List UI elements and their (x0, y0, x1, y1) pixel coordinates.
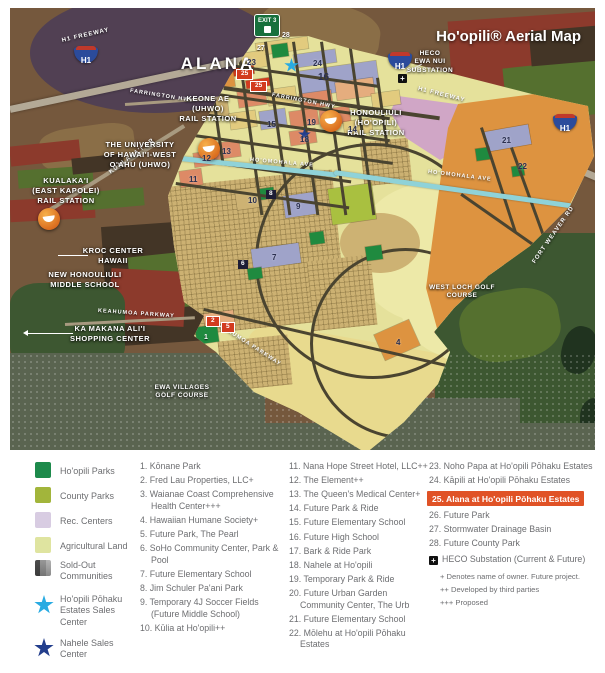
legend-column-2: 11. Nana Hope Street Hotel, LLC++12. The… (289, 461, 429, 654)
parcel-badge-16: 16 (318, 72, 329, 83)
rec-centers-swatch (35, 512, 51, 528)
legend-item: 9. Temporary 4J Soccer Fields (Future Mi… (140, 597, 288, 620)
legend-item: 7. Future Elementary School (140, 569, 288, 581)
kroc-center-label: KROC CENTER HAWAII (83, 246, 144, 266)
kroc-leader-line (58, 255, 88, 256)
agricultural-land-swatch (35, 537, 51, 553)
parcel (247, 267, 262, 280)
legend-footnote: ++ Developed by third parties (440, 585, 605, 595)
keoneae-station-label: KEONE AE (UHWO) RAIL STATION (179, 94, 236, 123)
rail-station-marker-kualakai (38, 208, 60, 230)
legend-item: 17. Bark & Ride Park (289, 546, 429, 558)
legend-item: 20. Future Urban Garden Community Center… (289, 588, 429, 611)
parcel-badge-25: 25 (250, 81, 267, 92)
parcel-badge-10: 10 (248, 196, 257, 205)
parcel-badge-11: 11 (189, 175, 197, 184)
legend-item: 14. Future Park & Ride (289, 503, 429, 515)
parcel-badge-12: 12 (202, 154, 211, 163)
parcel-badge-22: 22 (518, 162, 527, 171)
parcel-badge-4: 4 (396, 338, 400, 347)
legend-item: 1. Kōnane Park (140, 461, 288, 473)
heco-substation-legend-icon: + (429, 556, 438, 565)
legend-item: 4. Hawaiian Humane Society+ (140, 515, 288, 527)
legend-item: 26. Future Park (429, 510, 601, 522)
legend-item: 18. Nahele at Ho'opili (289, 560, 429, 572)
legend-item: 2. Fred Lau Properties, LLC+ (140, 475, 288, 487)
sold-out-communities-swatch (35, 560, 51, 576)
legend-item: 8. Jim Schuler Pa'ani Park (140, 583, 288, 595)
legend-item: 19. Temporary Park & Ride (289, 574, 429, 586)
parcel-badge-8: 8 (266, 190, 276, 199)
hoopili-pohaku-sales-star-icon (34, 595, 54, 615)
parcel-badge-14: 14 (348, 125, 357, 134)
ka-makana-label: KA MAKANA ALI'I SHOPPING CENTER (70, 324, 150, 344)
parcel-badge-13: 13 (222, 147, 231, 156)
parcel-badge-18: 18 (300, 135, 309, 144)
middle-school-label: NEW HONOULIULI MIDDLE SCHOOL (48, 270, 121, 290)
map-title: Ho'opili® Aerial Map (436, 28, 581, 45)
parcel-badge-6: 6 (238, 260, 248, 269)
heco-substation-legend-row: +HECO Substation (Current & Future) (429, 554, 585, 565)
legend-item: 27. Stormwater Drainage Basin (429, 524, 601, 536)
parcel (309, 231, 325, 245)
legend-footnote: + Denotes name of owner. Future project. (440, 572, 605, 582)
parcel (371, 90, 401, 108)
legend-item: 6. SoHo Community Center, Park & Pool (140, 543, 288, 566)
heco-substation-label: HECO EWA NUI SUBSTATION (407, 50, 453, 75)
legend-item: 15. Future Elementary School (289, 517, 429, 529)
parcel-badge-15: 15 (267, 120, 276, 129)
parcel-badge-25: 25 (236, 69, 253, 80)
page: H1 FREEWAY H1 FREEWAY FARRINGTON HWY FAR… (0, 0, 605, 673)
legend-item: 12. The Element++ (289, 475, 429, 487)
parcel-badge-27: 27 (257, 45, 265, 52)
parcel-badge-5: 5 (221, 322, 235, 333)
county-parks-label: County Parks (60, 491, 138, 502)
rail-station-marker-honouliuli (320, 110, 342, 132)
aerial-map: H1 FREEWAY H1 FREEWAY FARRINGTON HWY FAR… (10, 8, 595, 450)
kualakai-station-label: KUALAKA'I (EAST KAPOLEI) RAIL STATION (32, 176, 99, 205)
hoopili-parks-label: Ho'opili Parks (60, 466, 138, 477)
west-loch-label: WEST LOCH GOLF COURSE (429, 284, 495, 301)
parcel-badge-23: 23 (247, 58, 256, 67)
parcel-badge-21: 21 (502, 136, 511, 145)
legend-item: 16. Future High School (289, 532, 429, 544)
parcel-badge-9: 9 (296, 202, 300, 211)
county-parks-swatch (35, 487, 51, 503)
exit-sign-pictogram-icon (264, 26, 271, 33)
legend-item: 24. Kāpili at Ho'opili Pōhaku Estates (429, 475, 601, 487)
legend-footnote: +++ Proposed (440, 598, 605, 608)
legend-item-25-highlighted: 25. Alana at Ho'opili Pōhaku Estates (427, 491, 584, 506)
ewa-villages-label: EWA VILLAGES GOLF COURSE (155, 384, 210, 401)
legend-item: 21. Future Elementary School (289, 614, 429, 626)
parcel-badge-1: 1 (204, 334, 208, 341)
hoopili-pohaku-sales-label: Ho'opili Pōhaku Estates Sales Center (60, 594, 142, 628)
parcel-badge-2: 2 (206, 316, 220, 327)
exit-3-sign: EXIT 3 (254, 14, 280, 37)
legend-item: 5. Future Park, The Pearl (140, 529, 288, 541)
rec-centers-label: Rec. Centers (60, 516, 138, 527)
legend-item: 28. Future County Park (429, 538, 601, 550)
legend-item: 13. The Queen's Medical Center+ (289, 489, 429, 501)
legend-column-1: 1. Kōnane Park2. Fred Lau Properties, LL… (140, 461, 288, 637)
nahele-sales-star-icon (34, 638, 54, 658)
parcel (365, 245, 383, 261)
ka-makana-leader-line (28, 333, 73, 334)
legend-item: 11. Nana Hope Street Hotel, LLC++ (289, 461, 429, 473)
legend-column-3b: 26. Future Park27. Stormwater Drainage B… (429, 510, 601, 552)
heco-substation-legend-label: HECO Substation (Current & Future) (442, 554, 585, 564)
legend-item: 23. Noho Papa at Ho'opili Pōhaku Estates (429, 461, 601, 473)
parcel-badge-19: 19 (307, 118, 316, 127)
ka-makana-arrow-icon (23, 330, 28, 336)
legend-item: 3. Waianae Coast Comprehensive Health Ce… (140, 489, 288, 512)
hoopili-parks-swatch (35, 462, 51, 478)
parcel-badge-28: 28 (282, 32, 290, 39)
sold-out-communities-label: Sold-Out Communities (60, 560, 135, 583)
legend-item: 22. Mōlehu at Ho'opili Pōhaku Estates (289, 628, 429, 651)
legend-item: 10. Kūlia at Ho'opili++ (140, 623, 288, 635)
heco-substation-icon: + (398, 74, 407, 83)
nahele-sales-label: Nahele Sales Center (60, 638, 130, 661)
legend-column-3a: 23. Noho Papa at Ho'opili Pōhaku Estates… (429, 461, 601, 489)
parcel-badge-7: 7 (272, 253, 276, 262)
legend-footnotes: + Denotes name of owner. Future project.… (432, 572, 605, 611)
exit-3-sign-text: EXIT 3 (258, 18, 276, 24)
parcel-badge-24: 24 (313, 59, 322, 68)
parcel (271, 43, 289, 58)
university-label: THE UNIVERSITY OF HAWAI'I-WEST O'AHU (UH… (104, 140, 177, 169)
